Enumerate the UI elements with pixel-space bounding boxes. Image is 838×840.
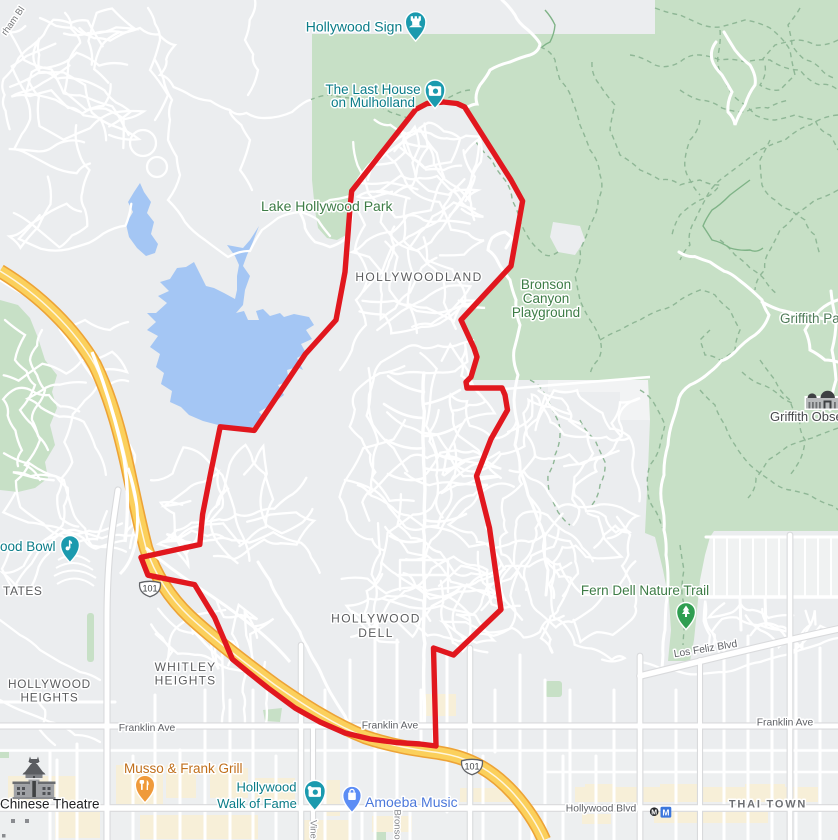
svg-text:Canyon: Canyon	[523, 291, 570, 306]
svg-text:HOLLYWOOD: HOLLYWOOD	[8, 677, 91, 691]
svg-text:WHITLEY: WHITLEY	[155, 660, 217, 674]
svg-text:HEIGHTS: HEIGHTS	[20, 691, 78, 705]
svg-text:Playground: Playground	[512, 305, 580, 320]
svg-text:Griffith Park: Griffith Park	[780, 311, 838, 326]
svg-text:HOLLYWOOD: HOLLYWOOD	[331, 612, 421, 626]
svg-text:Amoeba Music: Amoeba Music	[365, 794, 458, 810]
svg-text:DELL: DELL	[358, 626, 394, 640]
svg-text:Vine St: Vine St	[308, 820, 319, 840]
svg-text:Bronson: Bronson	[521, 277, 571, 292]
svg-text:Musso & Frank Grill: Musso & Frank Grill	[124, 761, 243, 776]
svg-text:101: 101	[142, 584, 157, 594]
svg-text:on Mulholland: on Mulholland	[331, 95, 415, 110]
svg-text:M: M	[662, 807, 669, 817]
svg-text:Hollywood: Hollywood	[237, 780, 297, 795]
svg-text:Griffith Observatory: Griffith Observatory	[770, 409, 838, 424]
svg-text:ood Bowl: ood Bowl	[0, 539, 56, 554]
svg-text:THAI TOWN: THAI TOWN	[729, 799, 807, 811]
svg-text:Hollywood Blvd: Hollywood Blvd	[566, 804, 637, 815]
svg-text:Hollywood Sign: Hollywood Sign	[306, 19, 403, 35]
svg-text:HEIGHTS: HEIGHTS	[155, 674, 217, 688]
svg-text:Walk of Fame: Walk of Fame	[217, 796, 297, 811]
svg-text:M: M	[651, 810, 657, 817]
svg-text:101: 101	[464, 762, 479, 772]
svg-text:Fern Dell Nature Trail: Fern Dell Nature Trail	[581, 583, 709, 598]
svg-text:Franklin Ave: Franklin Ave	[119, 723, 176, 734]
svg-text:HOLLYWOODLAND: HOLLYWOODLAND	[355, 270, 482, 284]
svg-text:Franklin Ave: Franklin Ave	[757, 718, 814, 729]
svg-text:TATES: TATES	[3, 584, 42, 598]
svg-text:Franklin Ave: Franklin Ave	[362, 721, 419, 732]
svg-text:Lake Hollywood Park: Lake Hollywood Park	[261, 198, 394, 214]
